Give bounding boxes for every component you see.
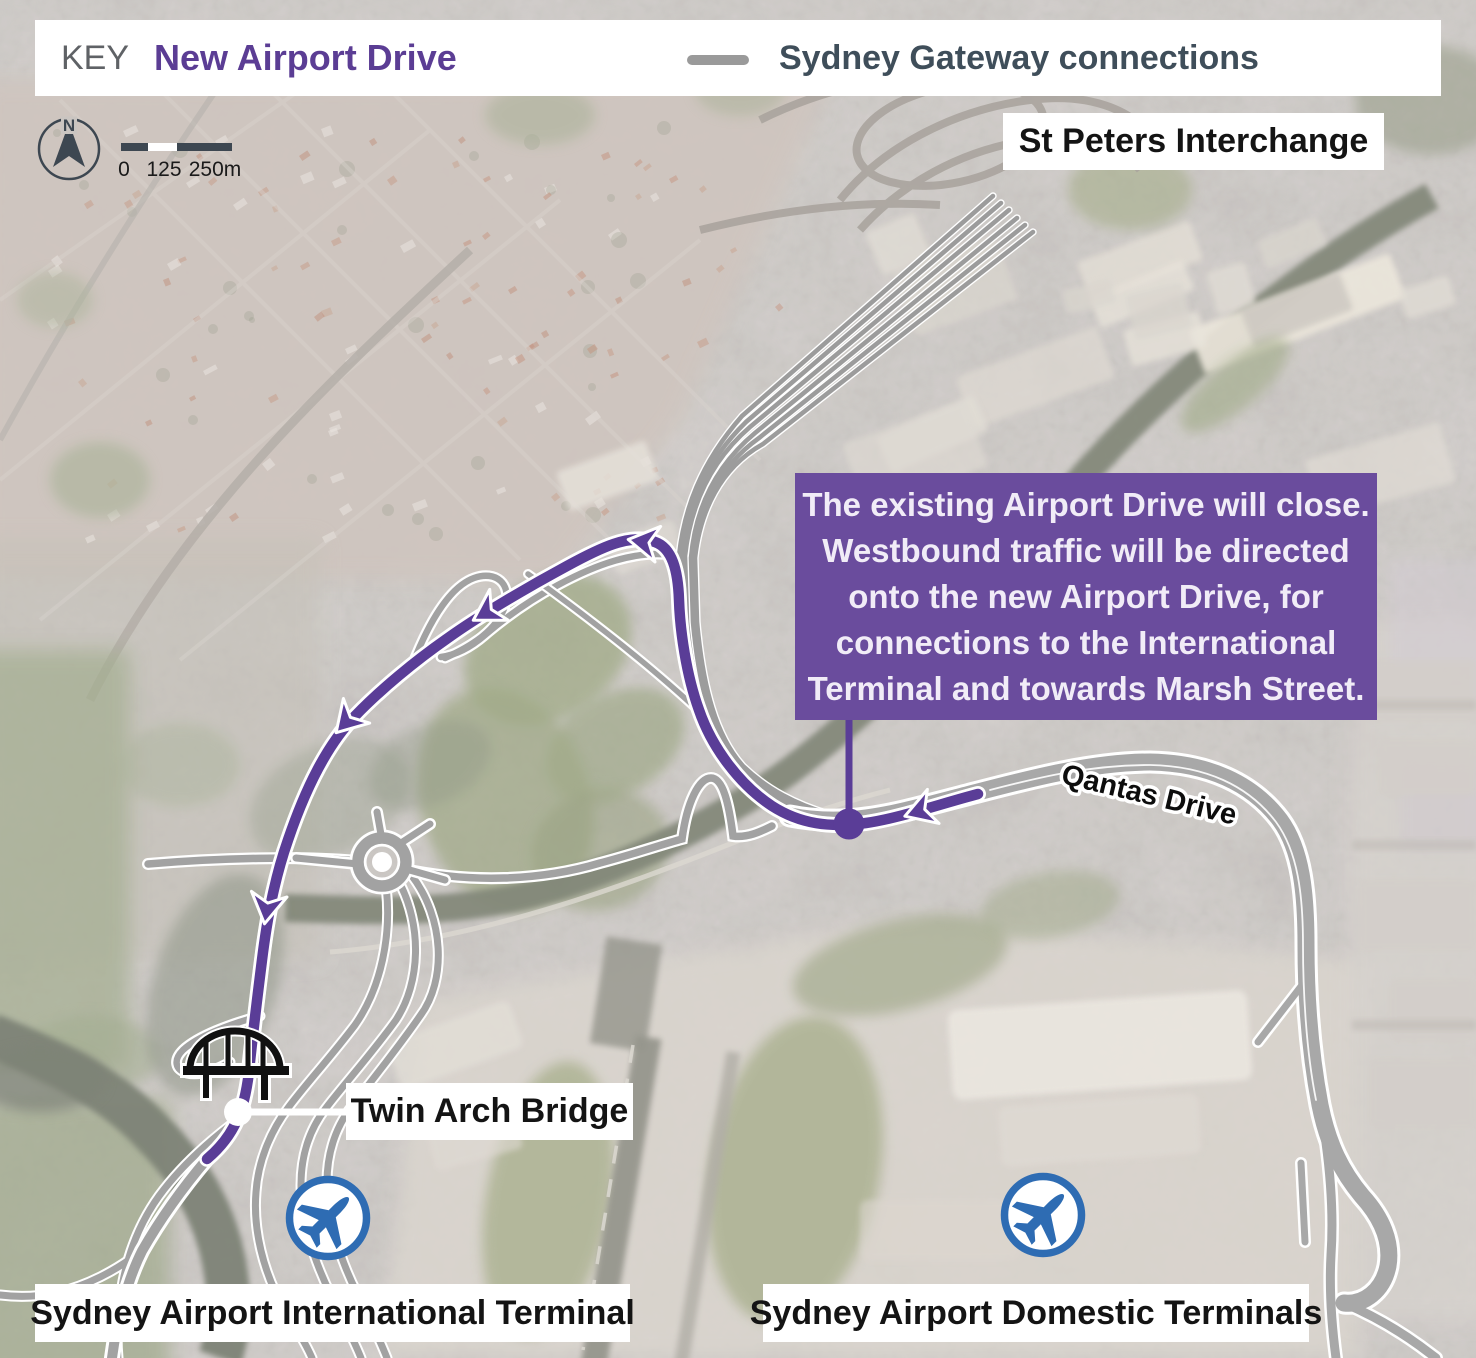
- svg-text:250m: 250m: [189, 158, 242, 181]
- svg-text:125: 125: [146, 158, 181, 181]
- svg-text:N: N: [63, 116, 75, 135]
- svg-text:0: 0: [118, 158, 130, 181]
